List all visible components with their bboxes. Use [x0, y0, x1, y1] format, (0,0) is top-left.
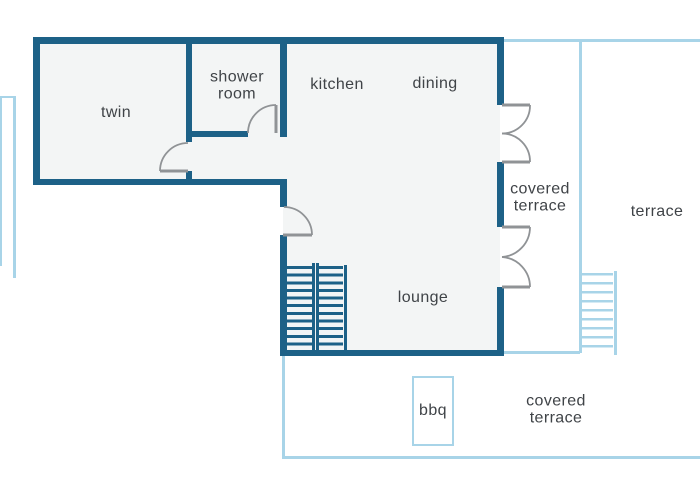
covered-terrace-lower-line2: terrace	[526, 410, 586, 427]
left-terrace-outer-line	[0, 96, 2, 266]
shower-room-label: shower room	[210, 70, 264, 103]
stairs-divider-rail-1	[312, 263, 315, 350]
wall-south-left-wing	[33, 179, 286, 186]
outdoor-steps	[582, 273, 613, 353]
wall-right-mid	[497, 162, 504, 227]
french-door-2-bottom-arc	[502, 257, 530, 287]
covered-terrace-upper-line1: covered	[510, 182, 570, 199]
wall-right-lower	[497, 287, 504, 356]
shower-room-label-line1: shower	[210, 70, 264, 87]
covered-terrace-lower-label: covered terrace	[526, 394, 586, 427]
stairs-right-column	[319, 266, 343, 350]
covered-terrace-upper-label: covered terrace	[510, 182, 570, 215]
bbq-label: bbq	[419, 403, 447, 420]
wall-lounge-bottom	[280, 350, 503, 357]
lower-terrace-bottom-line	[282, 456, 700, 459]
stairs-left-column	[287, 266, 312, 350]
lounge-label: lounge	[398, 290, 448, 307]
twin-label: twin	[101, 105, 131, 122]
terrace-label: terrace	[631, 204, 684, 221]
outdoor-steps-rail	[614, 271, 617, 355]
french-door-1-bottom-arc	[502, 134, 530, 163]
stairs-right-rail	[344, 265, 347, 350]
covered-terrace-bottom-line	[500, 351, 580, 354]
wall-shower-bottom	[186, 131, 248, 137]
terrace-top-line	[503, 39, 700, 42]
wall-top	[33, 37, 503, 44]
wall-twin-door-stub	[186, 171, 192, 180]
left-wing-floor	[36, 40, 286, 182]
covered-terrace-upper-line2: terrace	[510, 198, 570, 215]
wall-main-left-lower	[280, 235, 287, 356]
french-door-1-top-arc	[502, 105, 530, 134]
dining-label: dining	[412, 76, 457, 93]
floor-plan: twin shower room kitchen dining lounge c…	[0, 0, 700, 500]
lower-terrace-left-line	[282, 356, 285, 458]
shower-room-label-line2: room	[210, 86, 264, 103]
stairs-divider-rail-2	[316, 263, 319, 350]
wall-right-upper	[497, 37, 504, 105]
covered-terrace-lower-line1: covered	[526, 394, 586, 411]
kitchen-label: kitchen	[310, 77, 364, 94]
wall-twin-shower-divider	[186, 37, 192, 142]
french-door-2-top-arc	[502, 227, 530, 257]
left-terrace-inner-line	[13, 96, 16, 278]
wall-shower-right	[280, 37, 287, 137]
wall-left	[33, 37, 40, 185]
wall-main-left-mid	[280, 179, 287, 207]
